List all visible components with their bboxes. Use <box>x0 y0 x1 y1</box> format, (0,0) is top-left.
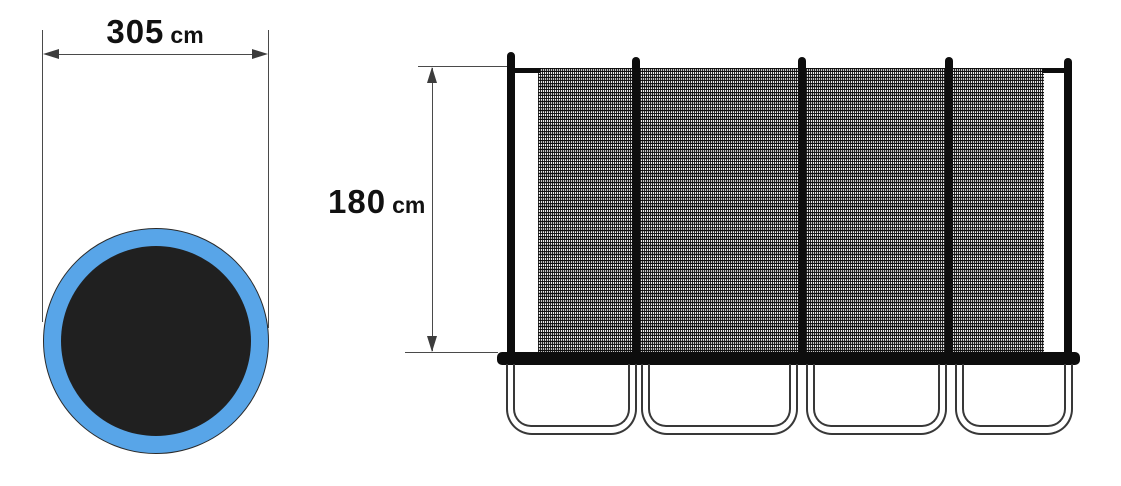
trampoline-leg-2 <box>641 364 798 435</box>
diameter-unit: cm <box>170 22 203 48</box>
leg-inner-tube <box>513 364 630 427</box>
extension-line-right <box>268 30 269 328</box>
extension-line-bottom <box>405 352 498 353</box>
arrowhead-left-icon <box>43 49 59 59</box>
diameter-dimension-label: 305cm <box>40 13 270 51</box>
leg-inner-tube <box>813 364 940 427</box>
net-pole-4 <box>945 57 953 358</box>
net-pole-2 <box>632 57 640 358</box>
trampoline-leg-4 <box>955 364 1073 435</box>
height-value: 180 <box>328 183 386 220</box>
height-unit: cm <box>392 192 425 218</box>
net-pole-3 <box>798 57 806 358</box>
safety-net-mesh <box>538 68 1044 353</box>
leg-inner-tube <box>962 364 1066 427</box>
net-top-bar-left <box>513 68 540 73</box>
jumping-mat <box>61 246 251 436</box>
trampoline-dimensions-diagram: 305cm 180cm <box>0 0 1121 486</box>
net-pole-5 <box>1064 58 1072 358</box>
arrowhead-right-icon <box>252 49 268 59</box>
diameter-value: 305 <box>106 13 164 50</box>
trampoline-leg-1 <box>506 364 637 435</box>
height-dimension-label: 180cm <box>328 183 424 221</box>
height-dimension-line <box>432 68 433 351</box>
arrowhead-down-icon <box>427 336 437 352</box>
trampoline-leg-3 <box>806 364 947 435</box>
arrowhead-up-icon <box>427 67 437 83</box>
width-dimension-line <box>46 54 264 55</box>
trampoline-top-view <box>43 228 269 454</box>
leg-inner-tube <box>648 364 791 427</box>
extension-line-left <box>42 30 43 322</box>
net-pole-1 <box>507 52 515 358</box>
